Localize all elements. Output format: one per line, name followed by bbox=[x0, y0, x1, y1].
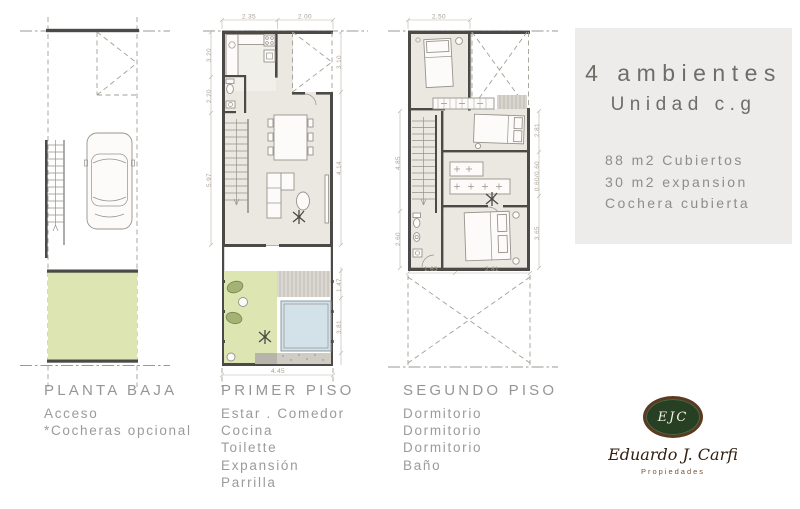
dim-label: 2.60 bbox=[395, 232, 402, 246]
dimension-left: 3.20 2.20 5.97 bbox=[206, 30, 213, 247]
plan-feature: Cocina bbox=[221, 422, 355, 439]
garden-area bbox=[20, 270, 170, 366]
plan-title: PLANTA BAJA bbox=[44, 382, 192, 399]
unit-name: Unidad c.g bbox=[575, 94, 792, 116]
logo-monogram: EJC bbox=[658, 410, 689, 425]
garage-door-swing bbox=[97, 32, 137, 95]
logo-ellipse-icon: EJC bbox=[643, 396, 703, 438]
dim-label: 2.00 bbox=[298, 14, 312, 21]
car-icon bbox=[85, 133, 135, 229]
plan-feature: Toilette bbox=[221, 439, 355, 456]
dim-label: 3.65 bbox=[534, 226, 541, 240]
plan-feature: Parrilla bbox=[221, 474, 355, 491]
step bbox=[255, 353, 277, 364]
dim-label: 4.14 bbox=[336, 161, 343, 175]
planter bbox=[227, 353, 235, 361]
dimension-right: 2.81 0.60/0.60 3.65 bbox=[534, 109, 541, 270]
detail-expansion-area: 30 m2 expansion bbox=[605, 172, 792, 194]
dim-label: 1.63 bbox=[424, 266, 438, 273]
front-wall bbox=[46, 29, 139, 32]
plan-title: PRIMER PISO bbox=[221, 382, 355, 399]
void-below bbox=[388, 275, 558, 367]
dim-label: 3.20 bbox=[206, 48, 213, 62]
dim-label: 1.47 bbox=[336, 278, 343, 292]
realtor-logo: EJC Eduardo J. Carfi Propiedades bbox=[600, 396, 746, 476]
detail-garage: Cochera cubierta bbox=[605, 193, 792, 215]
dim-label: 0.60/0.60 bbox=[534, 161, 541, 191]
plan-feature: Baño bbox=[403, 457, 557, 474]
dim-label: 2.81 bbox=[485, 266, 499, 273]
dim-label: 3.10 bbox=[336, 55, 343, 69]
plan-feature: Expansión bbox=[221, 457, 355, 474]
plan-feature: Estar . Comedor bbox=[221, 405, 355, 422]
dimension-left: 4.85 2.60 bbox=[395, 109, 402, 270]
plan-feature: Acceso bbox=[44, 405, 192, 422]
primer-piso-drawing: 2.35 2.00 bbox=[203, 15, 368, 390]
detail-covered-area: 88 m2 Cubiertos bbox=[605, 150, 792, 172]
plan-feature: *Cocheras opcional bbox=[44, 422, 192, 439]
dim-label: 2.81 bbox=[534, 123, 541, 137]
segundo-piso-label: SEGUNDO PISO Dormitorio Dormitorio Dormi… bbox=[403, 382, 557, 474]
planta-baja-label: PLANTA BAJA Acceso *Cocheras opcional bbox=[44, 382, 192, 439]
plan-title: SEGUNDO PISO bbox=[403, 382, 557, 399]
parrilla bbox=[277, 353, 331, 364]
dimension-top: 2.35 2.00 bbox=[220, 14, 335, 30]
dining-table bbox=[268, 115, 313, 160]
planta-baja-drawing bbox=[20, 15, 170, 390]
dimension-right: 3.10 4.14 1.47 3.81 bbox=[336, 30, 343, 365]
unit-details: 88 m2 Cubiertos 30 m2 expansion Cochera … bbox=[575, 150, 792, 215]
realtor-name: Eduardo J. Carfi bbox=[600, 445, 746, 464]
floor-plan-sheet: 2.35 2.00 bbox=[0, 0, 800, 509]
dim-label: 3.81 bbox=[336, 320, 343, 334]
unit-type: 4 ambientes bbox=[575, 60, 792, 87]
dim-label: 2.35 bbox=[242, 14, 256, 21]
expansion bbox=[222, 245, 334, 366]
dim-label: 4.85 bbox=[395, 156, 402, 170]
segundo-piso-drawing: 2.50 bbox=[388, 15, 558, 390]
dimension-top: 2.50 bbox=[406, 14, 472, 30]
plan-feature: Dormitorio bbox=[403, 439, 557, 456]
dim-label: 2.20 bbox=[206, 89, 213, 103]
info-panel: 4 ambientes Unidad c.g 88 m2 Cubiertos 3… bbox=[575, 28, 792, 244]
pool bbox=[281, 301, 331, 351]
plan-feature: Dormitorio bbox=[403, 405, 557, 422]
dim-label: 5.97 bbox=[206, 173, 213, 187]
plan-feature: Dormitorio bbox=[403, 422, 557, 439]
realtor-tagline: Propiedades bbox=[600, 467, 746, 476]
dim-label: 4.45 bbox=[271, 368, 285, 375]
garage-bay bbox=[293, 33, 332, 92]
dim-label: 2.50 bbox=[432, 14, 446, 21]
primer-piso-label: PRIMER PISO Estar . Comedor Cocina Toile… bbox=[221, 382, 355, 491]
